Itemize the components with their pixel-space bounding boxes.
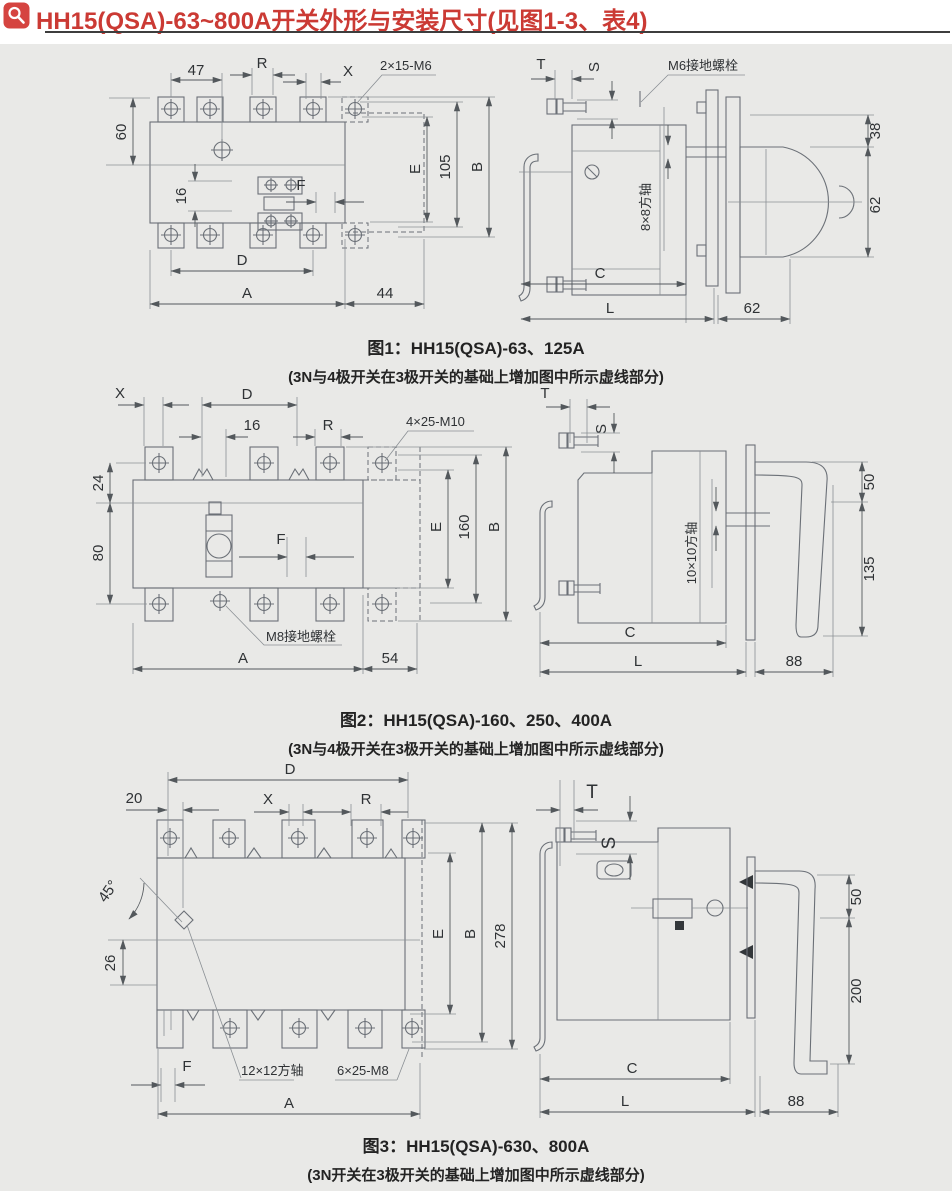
dim-88: 88 — [788, 1093, 805, 1110]
fig2-side-view: T S 10×10方轴 50 135 C L 88 — [534, 385, 878, 677]
dim-B: B — [462, 929, 479, 939]
figure3-drawings: D 20 X R 45° 26 E B 278 F — [0, 758, 952, 1133]
callout-12x12-shaft: 12×12方轴 — [241, 1063, 304, 1078]
dim-L: L — [606, 300, 614, 317]
dim-54: 54 — [382, 650, 399, 667]
fig1-side-dimensions: T S M6接地螺栓 8×8方轴 38 62 C L 62 — [521, 56, 884, 324]
dim-88: 88 — [786, 653, 803, 670]
figure2-note: (3N与4极开关在3极开关的基础上增加图中所示虚线部分) — [0, 738, 952, 759]
callout-10x10-shaft: 10×10方轴 — [684, 522, 699, 585]
dim-D: D — [242, 386, 253, 403]
dim-D: D — [237, 252, 248, 269]
dim-105: 105 — [437, 154, 454, 179]
dim-160: 160 — [456, 514, 473, 539]
dim-B: B — [469, 162, 486, 172]
dim-E: E — [407, 164, 424, 174]
dim-X: X — [115, 385, 125, 402]
callout-8x8-shaft: 8×8方轴 — [638, 183, 653, 231]
dim-16: 16 — [244, 417, 261, 434]
callout-M6-ground-bolt: M6接地螺栓 — [668, 58, 738, 73]
dim-24: 24 — [90, 475, 107, 492]
callout-6x25-M8: 6×25-M8 — [337, 1063, 389, 1078]
page-header: HH15(QSA)-63~800A开关外形与安装尺寸(见图1-3、表4) — [0, 0, 952, 44]
dim-47: 47 — [188, 62, 205, 79]
dim-A: A — [284, 1095, 294, 1112]
figure1-caption-block: 图1：HH15(QSA)-63、125A (3N与4极开关在3极开关的基础上增加… — [0, 334, 952, 387]
dim-L: L — [621, 1093, 629, 1110]
dim-F: F — [182, 1058, 191, 1075]
dim-F: F — [296, 177, 305, 194]
figure3-note: (3N开关在3极开关的基础上增加图中所示虚线部分) — [0, 1164, 952, 1185]
figure1-note: (3N与4极开关在3极开关的基础上增加图中所示虚线部分) — [0, 366, 952, 387]
fig1-front-view: 47 R X 2×15-M6 60 16 F E 105 — [106, 55, 495, 309]
dim-L: L — [634, 653, 642, 670]
dim-20: 20 — [126, 790, 143, 807]
dim-C: C — [627, 1060, 638, 1077]
figure2-drawings: X D 16 R 4×25-M10 24 80 F M8接地螺栓 E — [0, 385, 952, 703]
callout-M8-ground-bolt: M8接地螺栓 — [266, 629, 336, 644]
magnifier-icon — [3, 2, 30, 29]
dim-45deg: 45° — [95, 877, 122, 905]
dim-X: X — [343, 63, 353, 80]
fig3-front-view: D 20 X R 45° 26 E B 278 F — [95, 761, 518, 1119]
fig1-front-dimensions: 47 R X 2×15-M6 60 16 F E 105 — [109, 55, 495, 309]
dim-D: D — [285, 761, 296, 778]
dim-S: S — [599, 837, 620, 850]
catalog-page: { "page": {"background":"#e9e9e7","heade… — [0, 0, 952, 1191]
dim-200: 200 — [848, 978, 865, 1003]
fig1-side-view: T S M6接地螺栓 8×8方轴 38 62 C L 62 — [519, 56, 884, 324]
dim-S: S — [586, 62, 603, 72]
callout-2x15-M6: 2×15-M6 — [380, 58, 432, 73]
dim-60: 60 — [113, 124, 130, 141]
dim-A: A — [238, 650, 248, 667]
dim-B: B — [486, 522, 503, 532]
header-divider — [45, 31, 950, 33]
figure1-caption: 图1：HH15(QSA)-63、125A — [0, 334, 952, 359]
dim-62b: 62 — [744, 300, 761, 317]
figure2-caption-block: 图2：HH15(QSA)-160、250、400A (3N与4极开关在3极开关的… — [0, 706, 952, 759]
dim-16: 16 — [173, 188, 190, 205]
fig2-side-dimensions: T S 10×10方轴 50 135 C L 88 — [540, 385, 878, 677]
dim-E: E — [428, 522, 445, 532]
dim-T: T — [536, 56, 545, 73]
dim-E: E — [430, 929, 447, 939]
dim-62: 62 — [867, 197, 884, 214]
dim-26: 26 — [102, 955, 119, 972]
dim-T: T — [540, 385, 549, 402]
figure1-drawings: 47 R X 2×15-M6 60 16 F E 105 — [0, 55, 952, 333]
dim-C: C — [625, 624, 636, 641]
dim-A: A — [242, 285, 252, 302]
fig3-side-view: T S 50 200 C L 88 — [534, 780, 865, 1118]
dim-R: R — [257, 55, 268, 72]
dim-F: F — [276, 531, 285, 548]
figure2-caption: 图2：HH15(QSA)-160、250、400A — [0, 706, 952, 731]
dim-S: S — [593, 424, 610, 434]
dim-50: 50 — [861, 474, 878, 491]
dim-R: R — [361, 791, 372, 808]
dim-80: 80 — [90, 545, 107, 562]
figure3-caption: 图3：HH15(QSA)-630、800A — [0, 1132, 952, 1157]
dim-38: 38 — [867, 123, 884, 140]
dim-R: R — [323, 417, 334, 434]
dim-X: X — [263, 791, 273, 808]
fig3-side-dimensions: T S 50 200 C L 88 — [536, 780, 865, 1118]
dim-C: C — [595, 265, 606, 282]
dim-T: T — [586, 782, 598, 803]
callout-4x25-M10: 4×25-M10 — [406, 414, 465, 429]
fig2-front-view: X D 16 R 4×25-M10 24 80 F M8接地螺栓 E — [90, 385, 512, 674]
figure3-caption-block: 图3：HH15(QSA)-630、800A (3N开关在3极开关的基础上增加图中… — [0, 1132, 952, 1185]
dim-278: 278 — [492, 923, 509, 948]
dim-135: 135 — [861, 556, 878, 581]
dim-50: 50 — [848, 889, 865, 906]
fig2-front-dimensions: X D 16 R 4×25-M10 24 80 F M8接地螺栓 E — [90, 385, 512, 674]
dim-44: 44 — [377, 285, 394, 302]
